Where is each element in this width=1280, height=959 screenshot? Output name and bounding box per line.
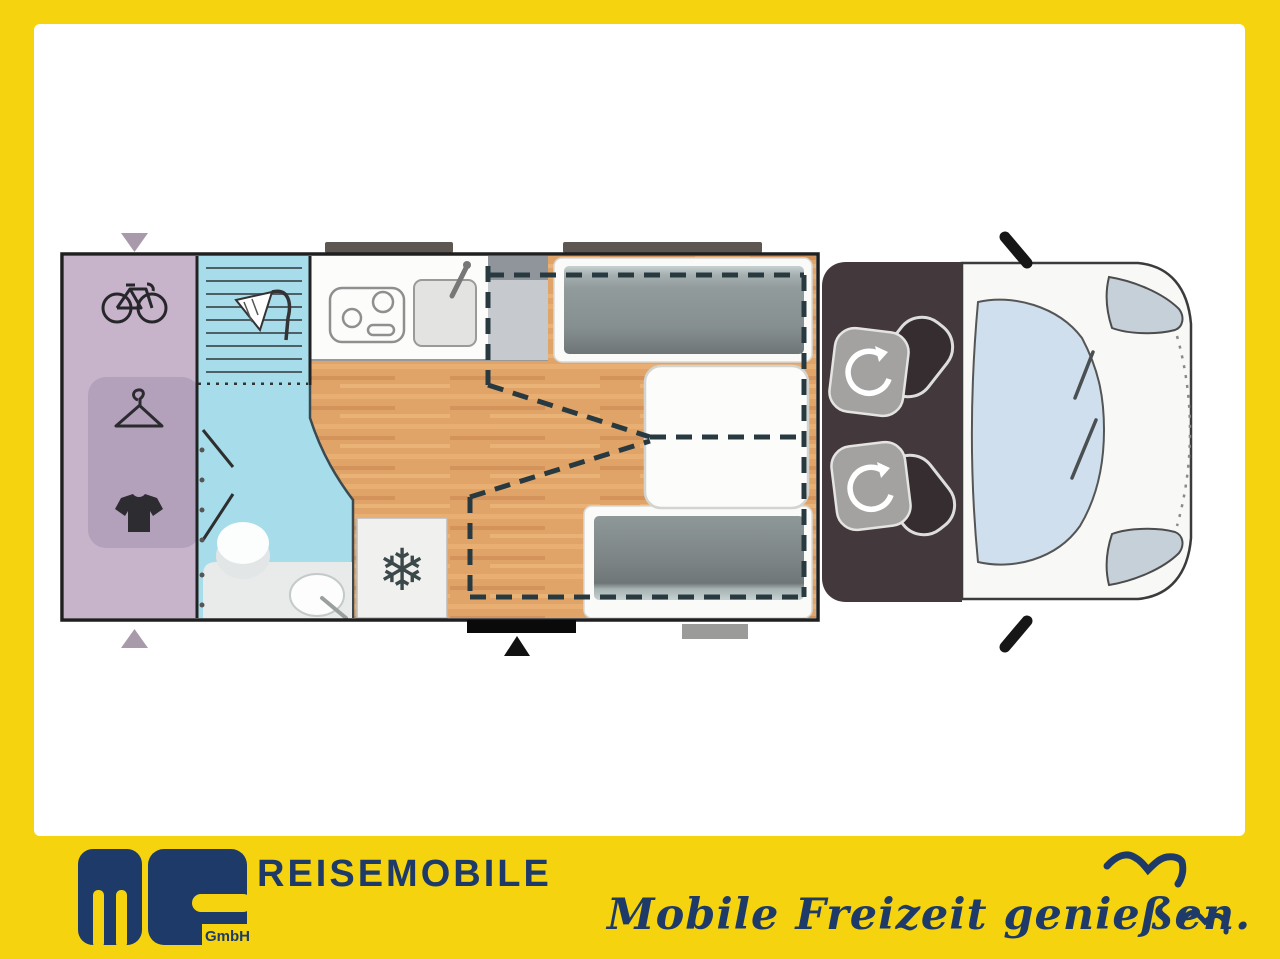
seagull-icon-small: [1182, 912, 1226, 932]
snowflake-icon: ❄: [378, 536, 427, 604]
advert-frame: ❄: [0, 0, 1280, 959]
roof-vent: [325, 242, 453, 253]
entry-step: [682, 624, 748, 639]
living-area: ❄: [62, 254, 818, 656]
floorplan-graphic: ❄: [0, 0, 1280, 959]
freezer: ❄: [357, 518, 447, 618]
roof-vent: [563, 242, 762, 253]
garage-door-marker-bottom: [121, 629, 148, 648]
side-mirror-bottom: [1005, 621, 1027, 647]
logo-m-glyph: [78, 849, 142, 945]
side-mirror-top: [1005, 237, 1027, 263]
shower-zone: [197, 256, 310, 385]
company-wordmark: REISEMOBILE: [257, 853, 552, 896]
ms-logo: GmbH: [72, 845, 249, 946]
entry-door: [467, 620, 576, 633]
tall-cabinet: [488, 256, 548, 360]
cab-front: [962, 237, 1191, 647]
logo-suffix: GmbH: [205, 928, 249, 945]
entry-door-marker: [504, 636, 530, 656]
seagull-icons: [1100, 848, 1240, 943]
seagull-icon-large: [1107, 855, 1183, 884]
garage-door-marker-top: [121, 233, 148, 252]
cab-interior: [822, 262, 965, 602]
